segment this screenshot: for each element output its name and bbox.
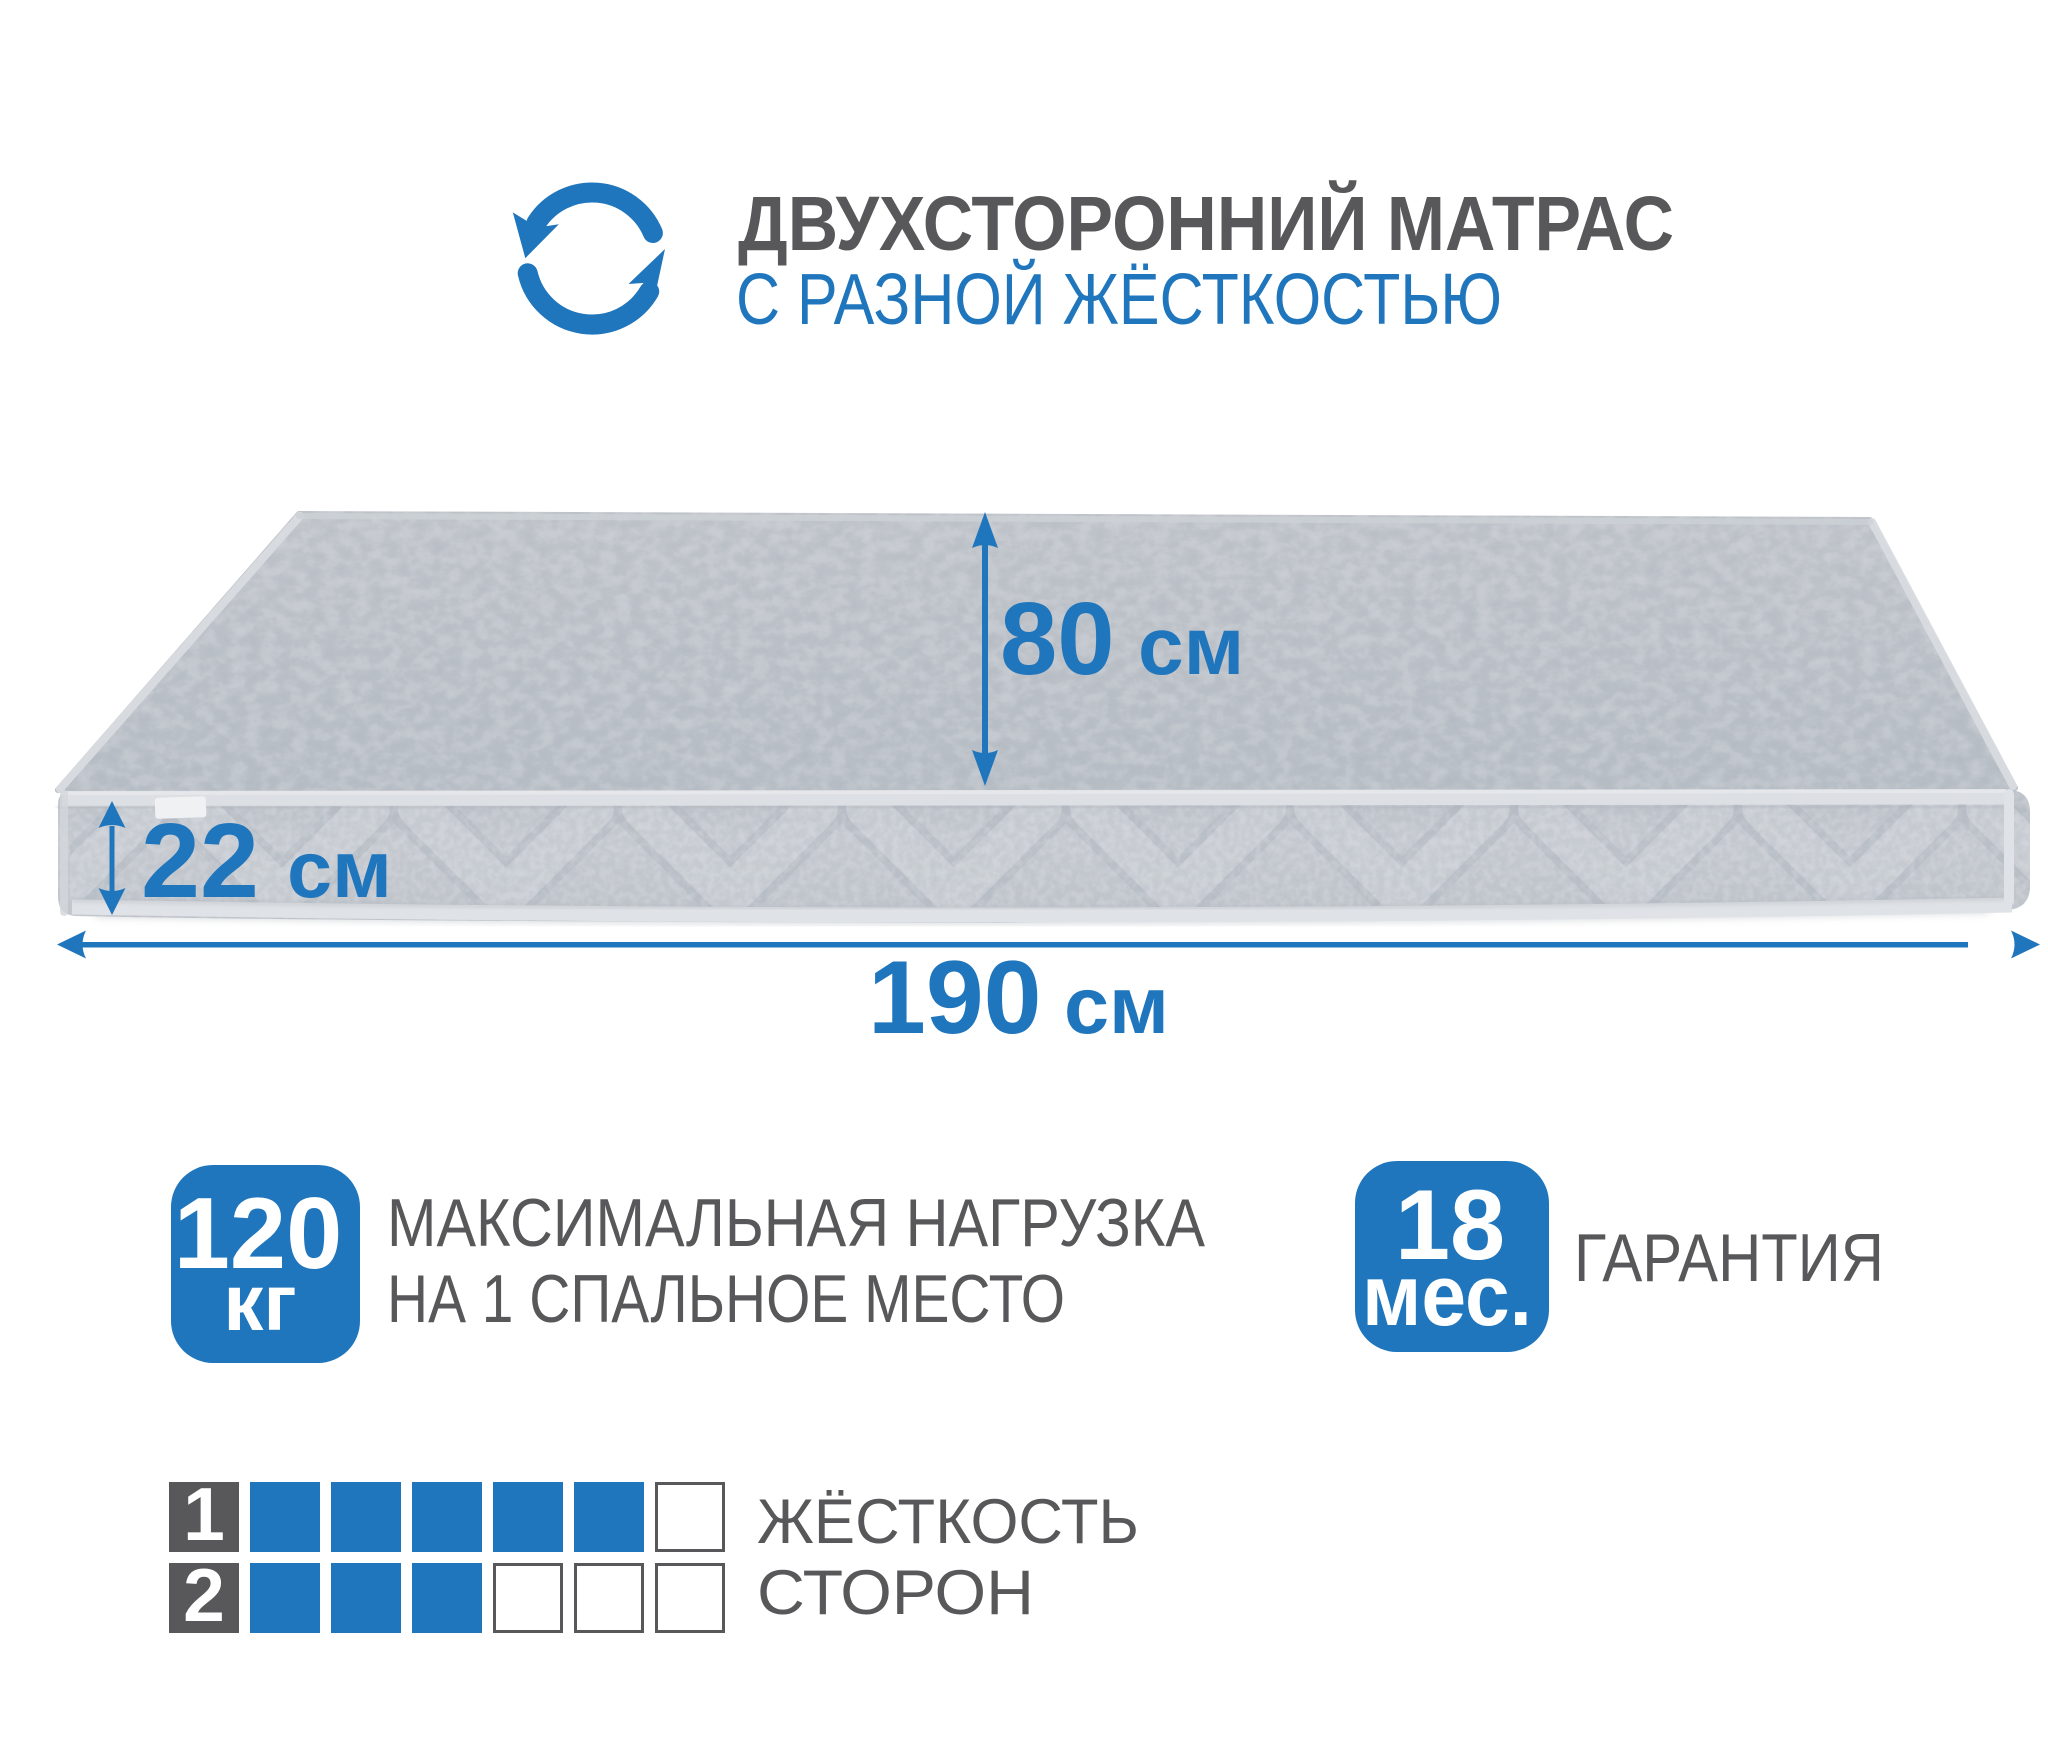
- svg-text:22: 22: [141, 802, 259, 920]
- svg-text:С РАЗНОЙ ЖЁСТКОСТЬЮ: С РАЗНОЙ ЖЁСТКОСТЬЮ: [736, 258, 1502, 340]
- svg-text:см: см: [1138, 601, 1244, 692]
- svg-text:см: см: [1064, 961, 1169, 1051]
- svg-text:80: 80: [1000, 581, 1115, 696]
- svg-text:ГАРАНТИЯ: ГАРАНТИЯ: [1574, 1220, 1884, 1296]
- svg-text:СТОРОН: СТОРОН: [757, 1558, 1034, 1628]
- svg-text:190: 190: [868, 940, 1042, 1056]
- svg-text:НА 1 СПАЛЬНОЕ МЕСТО: НА 1 СПАЛЬНОЕ МЕСТО: [387, 1261, 1065, 1337]
- svg-text:кг: кг: [223, 1258, 296, 1347]
- svg-text:1: 1: [183, 1472, 225, 1556]
- svg-text:2: 2: [183, 1553, 225, 1637]
- svg-text:см: см: [287, 825, 392, 915]
- svg-text:ДВУХСТОРОННИЙ МАТРАС: ДВУХСТОРОННИЙ МАТРАС: [738, 179, 1674, 267]
- svg-text:ЖЁСТКОСТЬ: ЖЁСТКОСТЬ: [757, 1487, 1139, 1557]
- svg-text:МАКСИМАЛЬНАЯ НАГРУЗКА: МАКСИМАЛЬНАЯ НАГРУЗКА: [387, 1185, 1206, 1261]
- svg-text:мес.: мес.: [1362, 1248, 1532, 1344]
